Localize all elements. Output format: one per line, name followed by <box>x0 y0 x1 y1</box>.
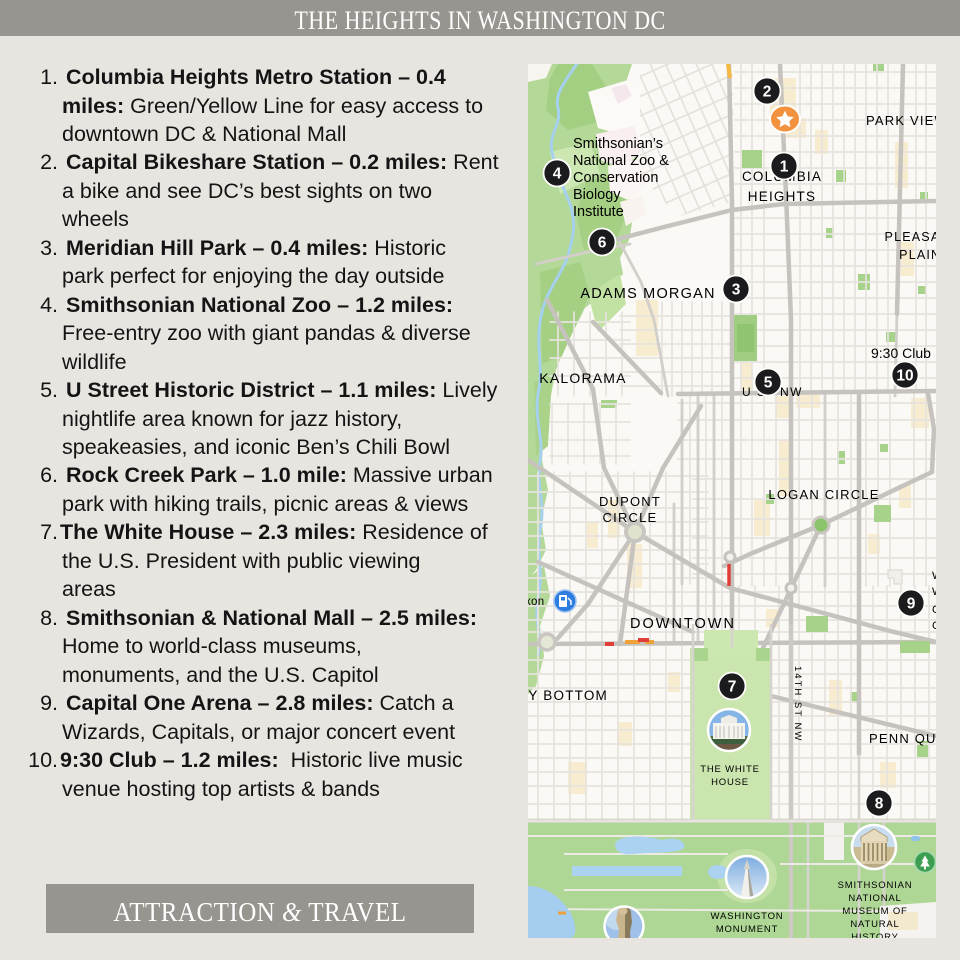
svg-text:MUSEUM OF: MUSEUM OF <box>842 906 907 917</box>
svg-text:HISTORY: HISTORY <box>851 932 898 938</box>
svg-text:DUPONT: DUPONT <box>599 494 661 509</box>
svg-text:ADAMS MORGAN: ADAMS MORGAN <box>580 286 715 302</box>
svg-text:Smithsonian’s: Smithsonian’s <box>573 136 663 152</box>
svg-text:7: 7 <box>728 679 737 696</box>
svg-text:HOUSE: HOUSE <box>711 777 749 788</box>
svg-text:5: 5 <box>764 375 773 392</box>
svg-text:1: 1 <box>780 159 789 176</box>
svg-text:W: W <box>932 570 936 582</box>
svg-text:HEIGHTS: HEIGHTS <box>748 189 816 204</box>
svg-text:PENN QUARTER: PENN QUARTER <box>869 731 936 746</box>
svg-text:DOWNTOWN: DOWNTOWN <box>630 616 736 632</box>
svg-text:9: 9 <box>907 596 916 613</box>
svg-text:FOGGY BOTTOM: FOGGY BOTTOM <box>528 688 608 703</box>
svg-text:xon: xon <box>528 596 544 608</box>
svg-text:CIRCLE: CIRCLE <box>603 510 658 525</box>
svg-text:6: 6 <box>598 235 607 252</box>
svg-text:8: 8 <box>875 796 884 813</box>
svg-text:2: 2 <box>763 84 772 101</box>
svg-text:9:30 Club: 9:30 Club <box>871 345 931 361</box>
svg-text:National Zoo &: National Zoo & <box>573 153 669 169</box>
svg-text:4: 4 <box>553 166 562 183</box>
svg-text:NATURAL: NATURAL <box>850 919 899 930</box>
svg-text:C: C <box>932 620 936 632</box>
svg-text:C: C <box>932 604 936 616</box>
svg-text:14TH ST NW: 14TH ST NW <box>792 666 803 742</box>
svg-text:PLAINS: PLAINS <box>899 248 936 262</box>
svg-text:3: 3 <box>732 282 741 299</box>
svg-text:PLEASANT: PLEASANT <box>885 230 936 244</box>
svg-text:MONUMENT: MONUMENT <box>716 924 778 935</box>
svg-text:THE WHITE: THE WHITE <box>700 764 759 775</box>
svg-text:WASHINGTON: WASHINGTON <box>711 911 784 922</box>
svg-text:SMITHSONIAN: SMITHSONIAN <box>838 880 913 891</box>
svg-text:W: W <box>932 586 936 598</box>
svg-text:LOGAN CIRCLE: LOGAN CIRCLE <box>768 487 879 502</box>
svg-text:KALORAMA: KALORAMA <box>539 370 626 386</box>
svg-text:PARK VIEW: PARK VIEW <box>866 113 936 128</box>
svg-text:Biology: Biology <box>573 187 621 203</box>
svg-text:10: 10 <box>896 368 913 385</box>
svg-text:NATIONAL: NATIONAL <box>848 893 901 904</box>
svg-text:Institute: Institute <box>573 204 624 220</box>
svg-text:Conservation: Conservation <box>573 170 658 186</box>
